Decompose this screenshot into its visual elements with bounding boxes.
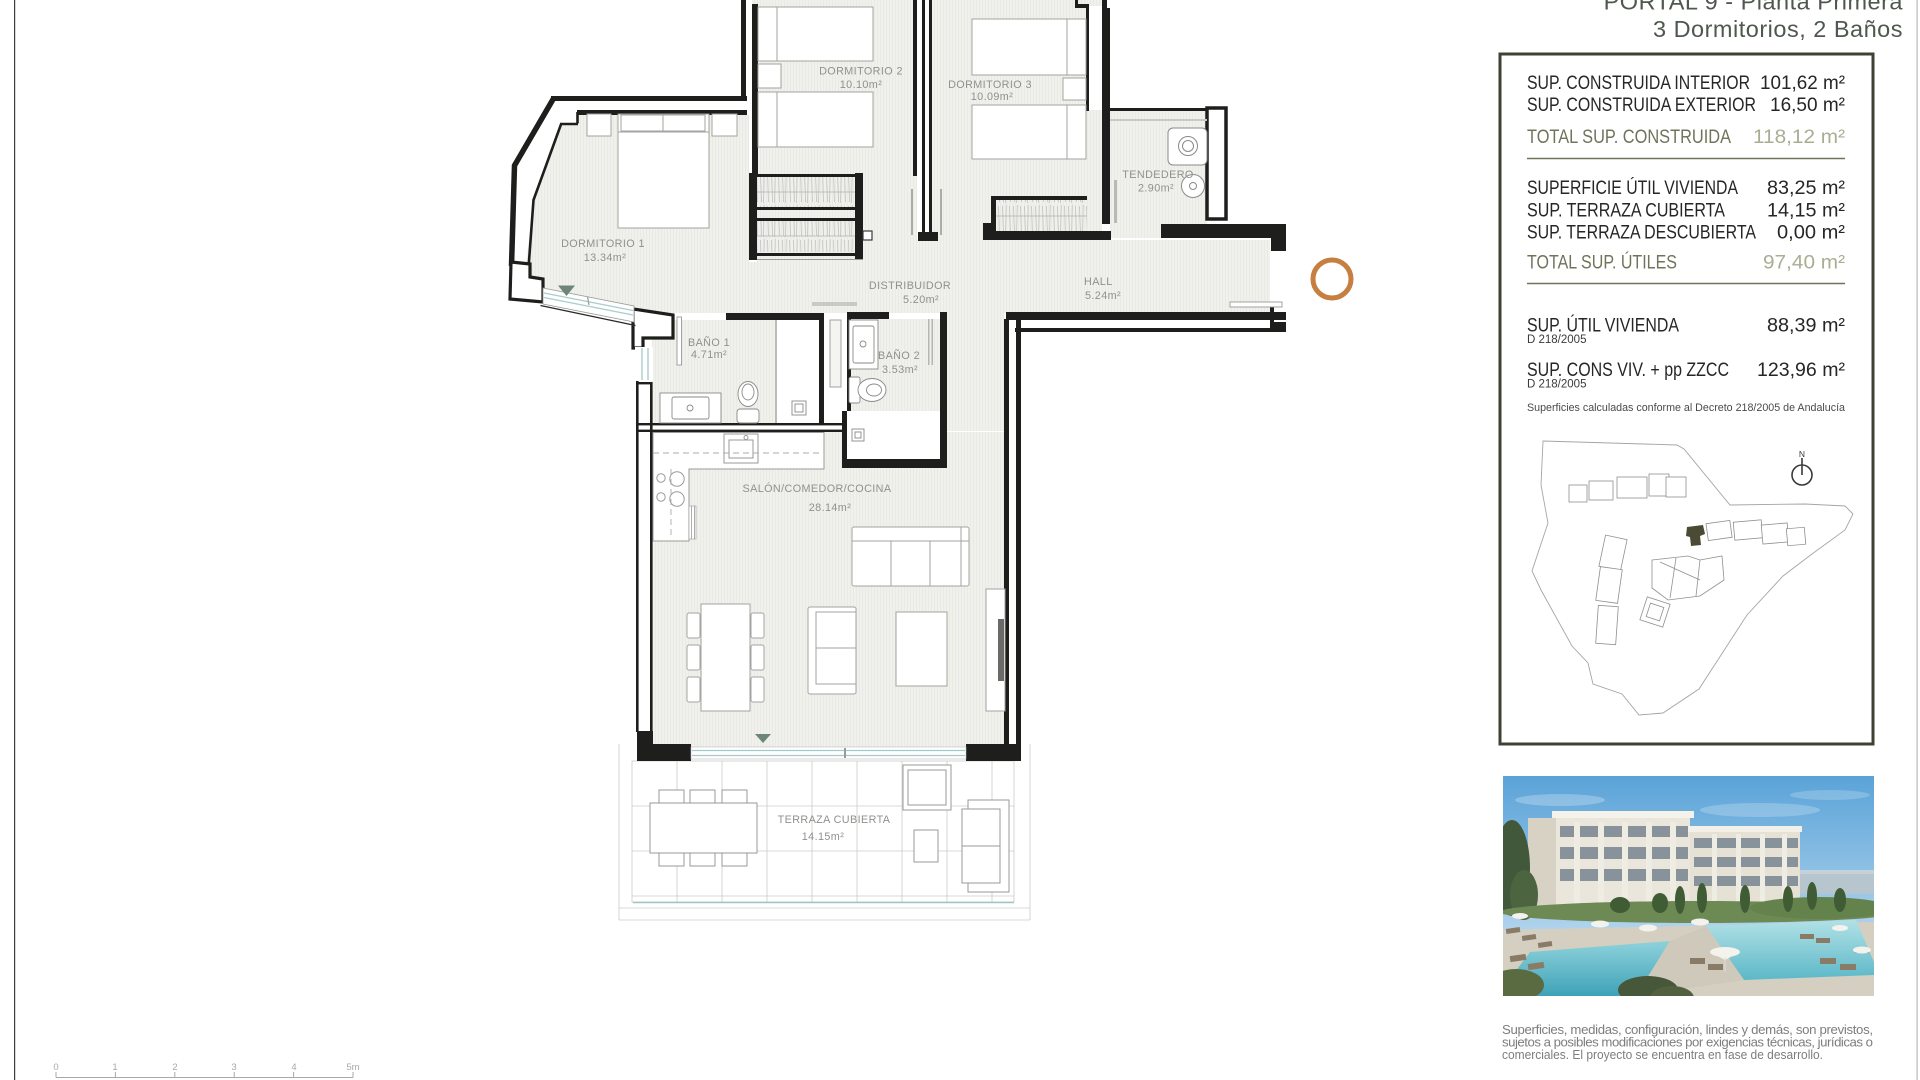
svg-text:4: 4 [291, 1062, 296, 1073]
svg-text:SALÓN/COMEDOR/COCINA: SALÓN/COMEDOR/COCINA [743, 482, 892, 495]
svg-text:28.14m²: 28.14m² [809, 502, 851, 514]
svg-text:83,25 m²: 83,25 m² [1767, 178, 1845, 199]
svg-text:13.34m²: 13.34m² [584, 252, 626, 264]
svg-text:N: N [1799, 449, 1805, 459]
svg-text:118,12 m²: 118,12 m² [1753, 126, 1846, 148]
svg-text:SUP. CONSTRUIDA INTERIOR: SUP. CONSTRUIDA INTERIOR [1527, 73, 1750, 94]
svg-text:TENDEDERO: TENDEDERO [1122, 169, 1193, 181]
svg-text:1: 1 [112, 1062, 117, 1073]
svg-text:DORMITORIO 2: DORMITORIO 2 [819, 66, 903, 78]
svg-text:3: 3 [231, 1062, 236, 1073]
svg-text:5.24m²: 5.24m² [1085, 290, 1121, 302]
svg-text:3.53m²: 3.53m² [882, 364, 918, 376]
svg-text:BAÑO 2: BAÑO 2 [878, 349, 920, 362]
svg-text:16,50 m²: 16,50 m² [1770, 95, 1845, 116]
svg-text:SUP. CONSTRUIDA EXTERIOR: SUP. CONSTRUIDA EXTERIOR [1527, 95, 1756, 116]
svg-text:2.90m²: 2.90m² [1138, 183, 1174, 195]
svg-text:DORMITORIO 3: DORMITORIO 3 [948, 79, 1032, 91]
svg-text:4.71m²: 4.71m² [691, 349, 727, 361]
svg-text:D 218/2005: D 218/2005 [1527, 379, 1586, 391]
svg-text:0,00 m²: 0,00 m² [1777, 223, 1845, 244]
svg-text:BAÑO 1: BAÑO 1 [688, 336, 730, 349]
svg-text:DORMITORIO 1: DORMITORIO 1 [561, 238, 645, 250]
svg-text:10.09m²: 10.09m² [971, 91, 1013, 103]
svg-text:TOTAL SUP. ÚTILES: TOTAL SUP. ÚTILES [1527, 251, 1677, 274]
svg-text:0: 0 [53, 1062, 58, 1073]
svg-text:PORTAL 9 - Planta Primera: PORTAL 9 - Planta Primera [1604, 0, 1904, 15]
svg-text:D 218/2005: D 218/2005 [1527, 334, 1586, 346]
svg-text:TOTAL SUP. CONSTRUIDA: TOTAL SUP. CONSTRUIDA [1527, 126, 1731, 148]
svg-text:comerciales. El proyecto se en: comerciales. El proyecto se encuentra en… [1502, 1047, 1823, 1062]
svg-text:3 Dormitorios, 2 Baños: 3 Dormitorios, 2 Baños [1653, 16, 1903, 42]
svg-text:5m: 5m [346, 1062, 359, 1073]
svg-text:HALL: HALL [1084, 276, 1113, 288]
svg-text:88,39 m²: 88,39 m² [1767, 316, 1845, 337]
svg-text:5.20m²: 5.20m² [903, 294, 939, 306]
svg-text:101,62 m²: 101,62 m² [1760, 73, 1845, 94]
svg-text:123,96 m²: 123,96 m² [1757, 360, 1845, 381]
svg-text:Superficies calculadas conform: Superficies calculadas conforme al Decre… [1527, 402, 1846, 414]
svg-text:SUP. TERRAZA CUBIERTA: SUP. TERRAZA CUBIERTA [1527, 201, 1725, 222]
svg-text:97,40 m²: 97,40 m² [1763, 252, 1846, 274]
svg-text:DISTRIBUIDOR: DISTRIBUIDOR [869, 280, 951, 292]
svg-text:14,15 m²: 14,15 m² [1767, 201, 1845, 222]
svg-text:14.15m²: 14.15m² [802, 831, 844, 843]
svg-text:SUP. TERRAZA DESCUBIERTA: SUP. TERRAZA DESCUBIERTA [1527, 223, 1756, 244]
svg-text:10.10m²: 10.10m² [840, 79, 882, 91]
svg-text:TERRAZA CUBIERTA: TERRAZA CUBIERTA [778, 814, 891, 826]
svg-text:2: 2 [172, 1062, 177, 1073]
svg-text:SUPERFICIE ÚTIL VIVIENDA: SUPERFICIE ÚTIL VIVIENDA [1527, 177, 1738, 199]
